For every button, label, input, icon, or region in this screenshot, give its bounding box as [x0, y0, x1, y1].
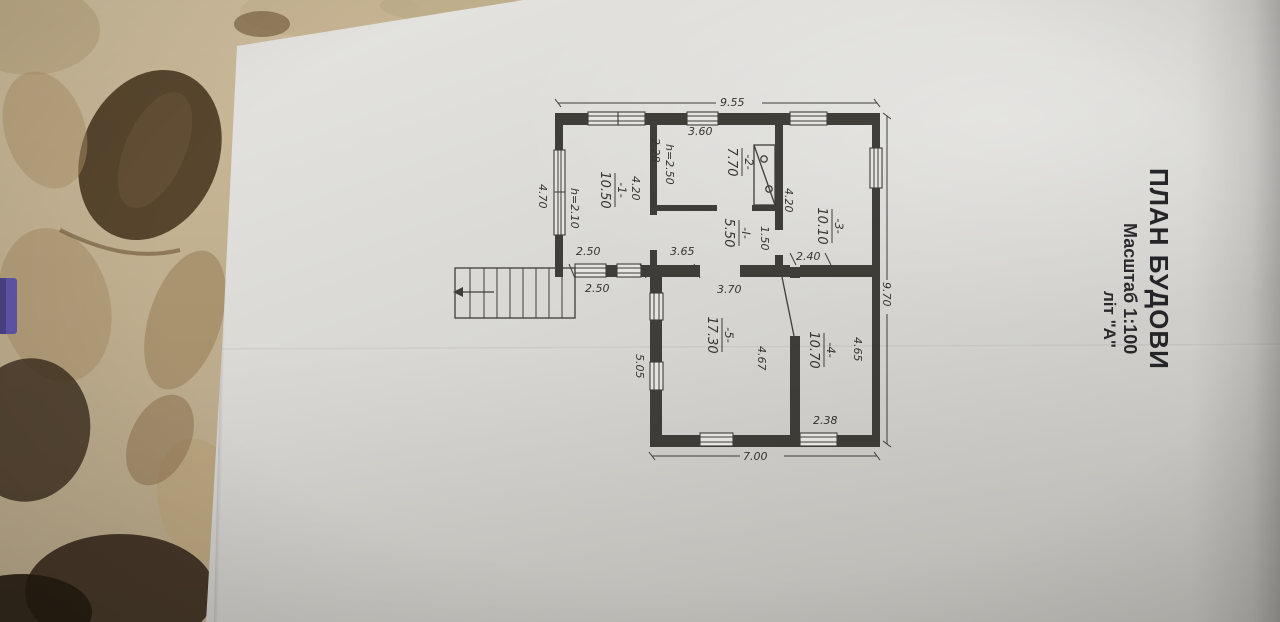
floor-plan-drawing: 9.55 9.70 7.00 4.70 4.20 3.60 2.28 4.20 … [442, 88, 902, 468]
dimension-lines [555, 99, 891, 460]
dim-vestibule-wall: 3.65 [670, 245, 695, 258]
dim-r1-depth: 4.20 [629, 176, 642, 201]
room-label-5: -5- 17.30 [704, 316, 736, 353]
room-label-2: -2- 7.70 [724, 148, 756, 177]
room-label-vestibule: -I- 5.50 [721, 219, 753, 248]
svg-text:-2-: -2- [742, 154, 756, 170]
svg-text:-I-: -I- [739, 227, 753, 239]
window [575, 264, 606, 277]
dim-overall-right: 7.00 [743, 450, 768, 463]
plan-title: ПЛАН БУДОВИ [1143, 168, 1174, 370]
dim-overall-top: 9.70 [880, 282, 893, 307]
window [554, 150, 565, 235]
dim-r5-wall: 3.70 [717, 283, 742, 296]
window [588, 112, 618, 125]
dim-r2-width: 2.28 [649, 138, 662, 163]
svg-text:7.70: 7.70 [724, 148, 739, 177]
scale-label: Масштаб 1:100 [1119, 223, 1140, 354]
door-leaf [782, 277, 794, 336]
window [700, 433, 733, 446]
stove-symbol [754, 145, 775, 205]
interior-walls [555, 113, 880, 443]
dim-r5-length: 4.67 [755, 346, 768, 371]
window [800, 433, 837, 446]
dim-r5-outside: 5.05 [633, 354, 646, 379]
svg-text:-1-: -1- [615, 182, 629, 198]
height-note-room1: h=2.10 [568, 188, 581, 229]
svg-text:10.70: 10.70 [806, 331, 821, 368]
svg-text:5.50: 5.50 [721, 219, 736, 248]
dim-r3-wall: 4.20 [782, 188, 795, 213]
room-label-3: -3- 10.10 [814, 207, 846, 244]
window [618, 112, 645, 125]
svg-text:-5-: -5- [722, 327, 736, 343]
window [650, 362, 663, 390]
dim-overall-left: 9.55 [720, 96, 745, 109]
dim-r1-bottom: 4.70 [536, 184, 549, 209]
windows [554, 112, 882, 446]
direction-arrow [453, 287, 494, 297]
dim-corridor-inner: 2.50 [576, 245, 601, 258]
svg-text:10.10: 10.10 [814, 207, 829, 244]
height-note-room2: h=2.50 [663, 144, 676, 185]
dim-r4-width: 2.38 [813, 414, 838, 427]
svg-text:-3-: -3- [832, 218, 846, 234]
window [790, 112, 827, 125]
window [650, 293, 663, 320]
svg-text:-4-: -4- [824, 342, 838, 358]
dim-r4-length: 4.65 [851, 337, 864, 362]
dim-r3-width: 2.40 [796, 250, 821, 263]
svg-text:17.30: 17.30 [704, 316, 719, 353]
room-label-1: -1- 10.50 [597, 171, 629, 208]
svg-text:10.50: 10.50 [597, 171, 612, 208]
dim-r2-length: 3.60 [688, 125, 713, 138]
window [870, 148, 882, 188]
letter-label: літ "А" [1099, 291, 1119, 348]
window [617, 264, 641, 277]
document-content: ПЛАН БУДОВИ Масштаб 1:100 літ "А" [0, 0, 1280, 622]
dim-r3-opening: 1.50 [758, 226, 771, 251]
photo-scene: ПЛАН БУДОВИ Масштаб 1:100 літ "А" [0, 0, 1280, 622]
dim-corridor-outer: 2.50 [585, 282, 610, 295]
exterior-walls [555, 113, 880, 447]
window [687, 112, 718, 125]
room-label-4: -4- 10.70 [806, 331, 838, 368]
